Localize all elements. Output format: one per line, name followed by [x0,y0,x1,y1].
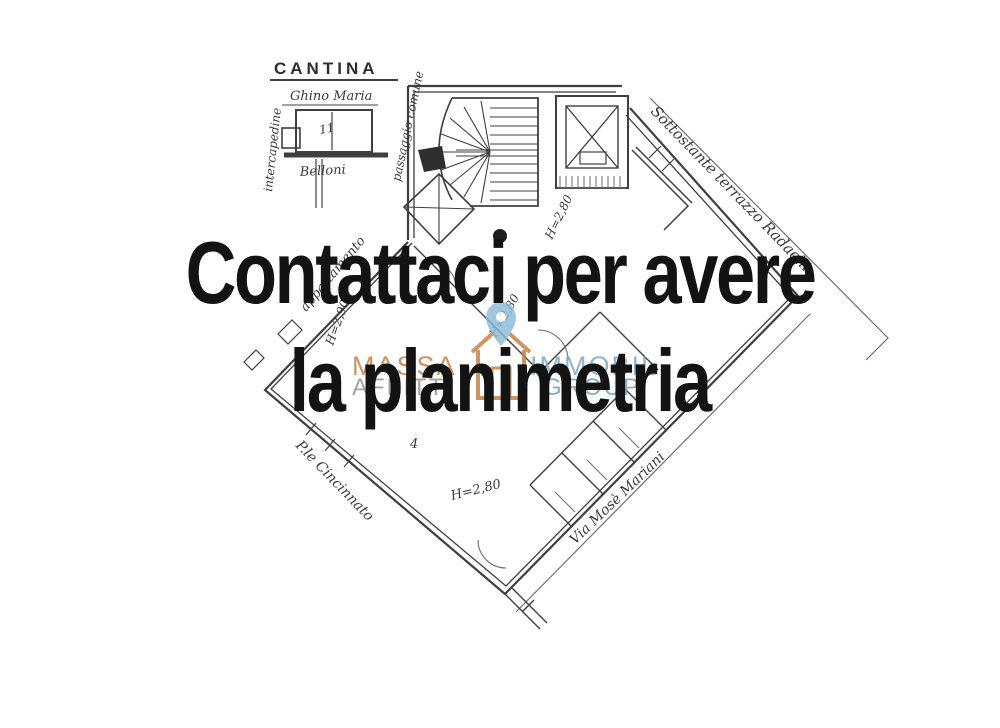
street-name-right: Via Mosè Mariani [567,449,668,548]
plan-annotations: Sottostante terrazzo Radaelli appartamen… [291,102,814,548]
cantina-room-mark: 11 [318,121,335,137]
stair-solid-mark [418,146,446,172]
cantina-owner-note: Ghino Maria [290,89,372,104]
cantina-left-note: intercapedine [261,107,284,192]
headline-line-2: la planimetria [0,330,1000,431]
headline-line-1-text: Contattaci per avere [186,222,815,323]
listing-placeholder-image: CANTINA Ghino Maria 11 intercapedine pas… [0,0,1000,728]
elevator-shaft [556,96,628,188]
cantina-inset: CANTINA Ghino Maria 11 intercapedine pas… [261,59,426,208]
cantina-title: CANTINA [274,59,379,78]
headline-line-1: Contattaci per avere [0,222,1000,323]
room-number: 4 [409,437,418,452]
cantina-bottom-note: Belloni [298,163,346,180]
headline-line-2-text: la planimetria [290,330,710,431]
height-label-4: H=2,80 [448,477,502,504]
